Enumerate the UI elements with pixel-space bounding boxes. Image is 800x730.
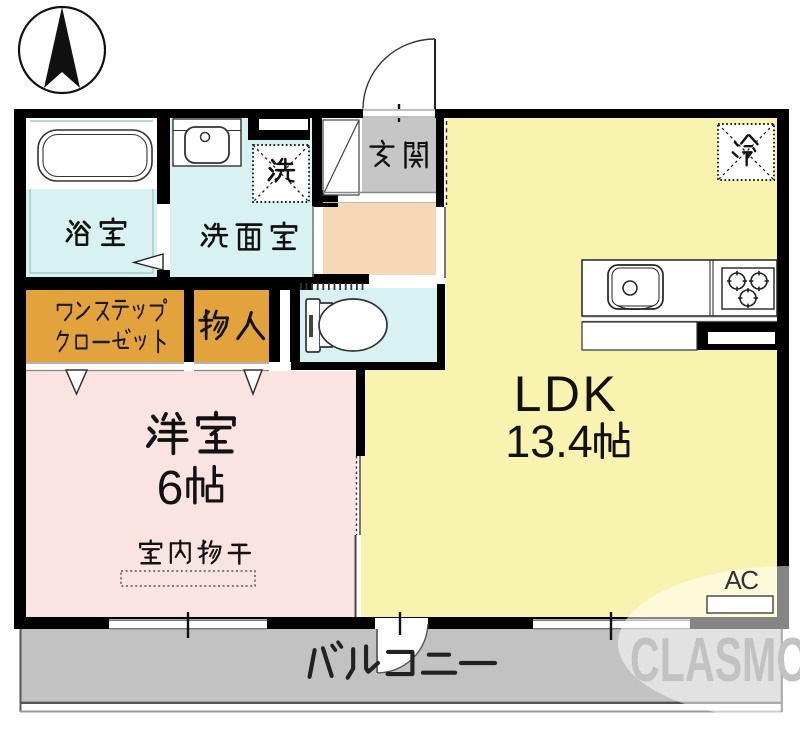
svg-text:CLASMO: CLASMO [630,626,800,696]
svg-text:6: 6 [157,462,184,515]
svg-text:13.4: 13.4 [505,416,593,467]
svg-text:LDK: LDK [514,366,619,422]
svg-text:AC: AC [724,565,758,595]
